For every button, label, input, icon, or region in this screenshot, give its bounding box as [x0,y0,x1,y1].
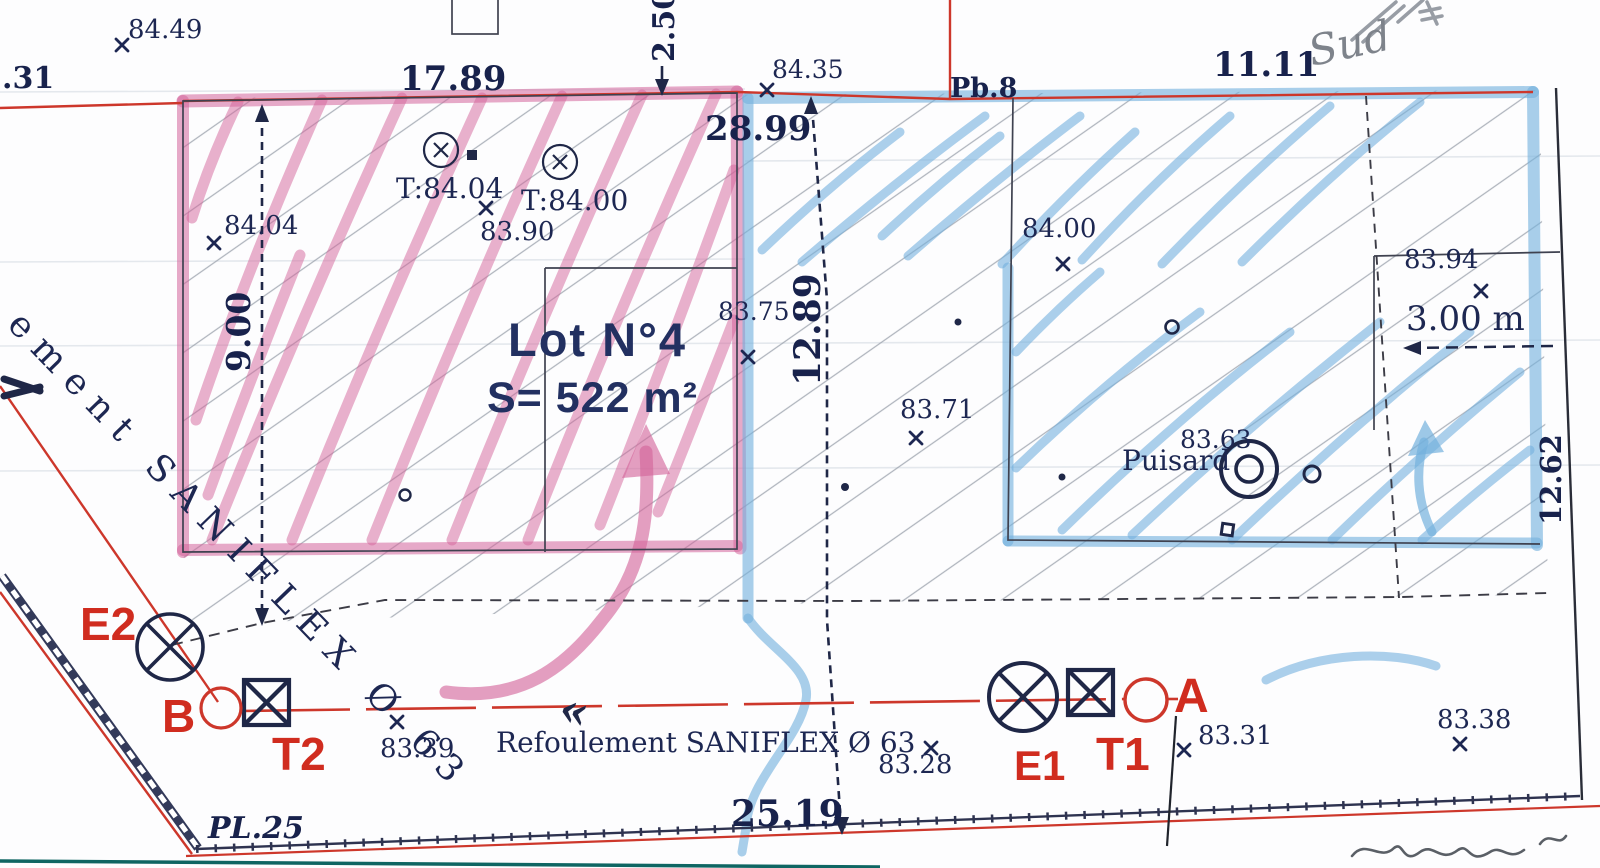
dim-11-11: 11.11 [1213,45,1319,85]
elev-84-49: 84.49 [128,15,202,45]
elev-t84-00: T:84.00 [521,184,628,217]
elev-84-35: 84.35 [772,55,844,84]
dim-12-62: 12.62 [1534,434,1568,525]
point-t2: T2 [272,728,326,780]
dim-17-89: 17.89 [400,59,506,99]
line-t1-down [1167,716,1176,846]
handwritten-sud: Sud [1304,11,1395,76]
label-pl25: PL.25 [207,811,304,846]
manhole-e1-icon [989,663,1057,731]
elev-83-75: 83.75 [718,297,790,326]
elev-84-00: 84.00 [1022,214,1096,244]
box-t1-icon [1068,670,1113,715]
elev-83-28: 83.28 [878,750,952,780]
dim-25-19: 25.19 [731,793,844,835]
bottom-boundary [196,796,1580,849]
dim-9-00: 9.00 [219,292,258,372]
site-plan-scan: .31 84.49 17.89 2.50 84.35 28.99 Pb.8 11… [0,0,1600,868]
elev-83-39: 83.39 [380,734,454,764]
dim-28-99: 28.99 [705,109,811,149]
lot-area: S= 522 m² [487,374,698,422]
elev-83-31: 83.31 [1198,721,1272,751]
lot-name: Lot N°4 [508,313,687,366]
teal-road-line [0,861,880,867]
point-t1: T1 [1096,728,1150,780]
dim-2-50: 2.50 [647,0,682,62]
dim-left-partial: .31 [2,61,54,96]
elev-83-71: 83.71 [900,395,974,425]
manhole-e2-icon [137,614,203,680]
label-pb8: Pb.8 [950,73,1017,104]
dim-12-89: 12.89 [787,273,829,386]
point-e1: E1 [1014,742,1065,789]
elev-83-90: 83.90 [480,217,554,247]
point-a: A [1174,670,1209,723]
point-e2: E2 [80,598,136,650]
dim-3-00m: 3.00 m [1406,299,1525,339]
elev-t84-04: T:84.04 [396,172,503,205]
elev-84-04: 84.04 [224,211,298,241]
marker-square-filled [467,150,477,160]
elev-83-63: 83.63 [1180,425,1252,454]
elev-83-38: 83.38 [1437,705,1511,735]
box-t2-icon [244,680,289,725]
pipe-label-main: Refoulement SANIFLEX Ø 63 [496,726,915,759]
plan-drawing: .31 84.49 17.89 2.50 84.35 28.99 Pb.8 11… [0,0,1600,868]
pipe-arrow-left-icon [4,379,40,396]
point-b-circle [201,688,241,728]
point-b: B [162,690,195,742]
elev-83-94: 83.94 [1404,245,1478,275]
point-a-circle [1125,679,1167,721]
handwritten-note [1352,836,1566,856]
